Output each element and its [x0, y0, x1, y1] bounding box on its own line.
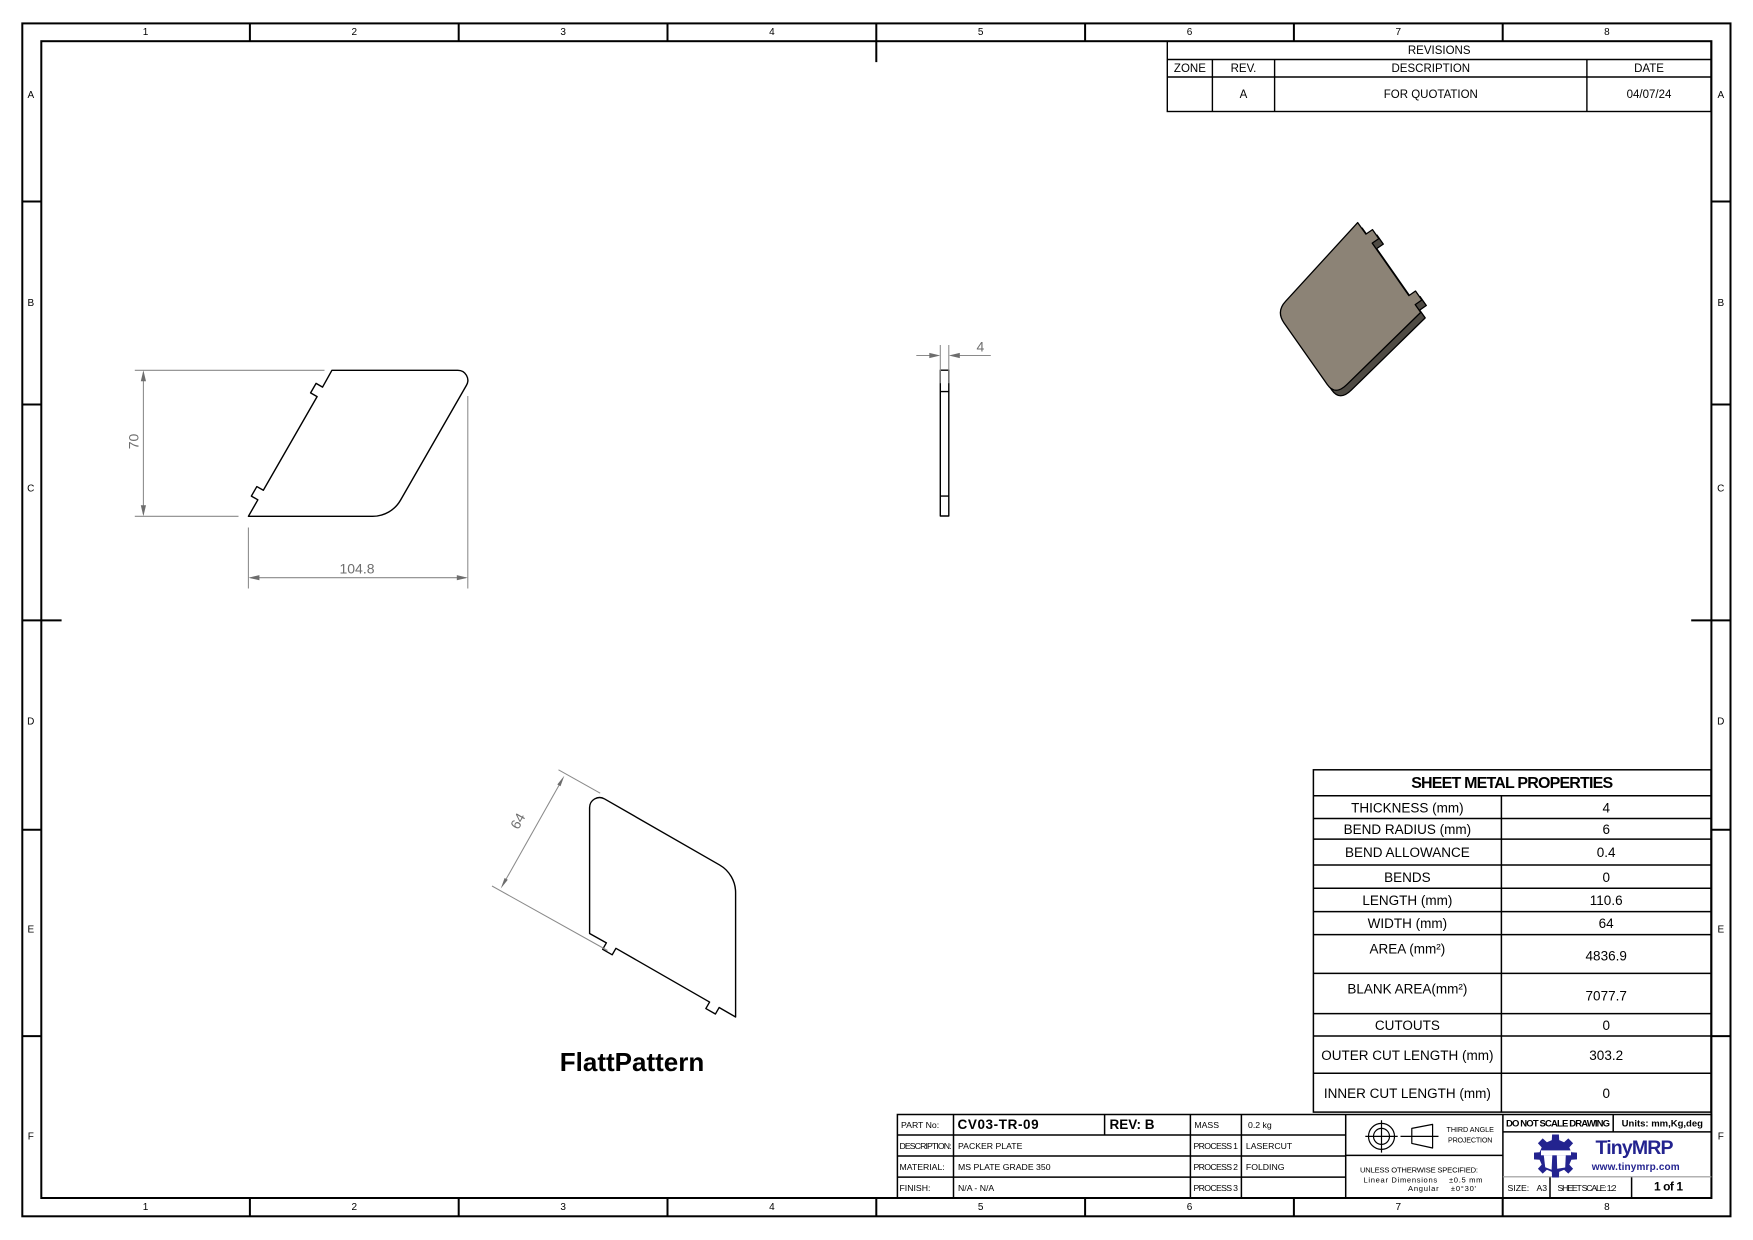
svg-text:A: A: [1717, 90, 1724, 101]
svg-text:4: 4: [1602, 800, 1610, 815]
svg-text:INNER CUT LENGTH (mm): INNER CUT LENGTH (mm): [1324, 1086, 1491, 1101]
svg-text:A: A: [1240, 89, 1248, 101]
svg-text:F: F: [28, 1132, 34, 1143]
svg-text:2: 2: [352, 1202, 358, 1213]
svg-text:A: A: [27, 90, 34, 101]
svg-text:FOR QUOTATION: FOR QUOTATION: [1384, 89, 1478, 101]
svg-text:0: 0: [1602, 870, 1610, 885]
svg-text:4: 4: [977, 339, 985, 355]
svg-text:www.tinymrp.com: www.tinymrp.com: [1591, 1162, 1680, 1173]
svg-text:BEND RADIUS (mm): BEND RADIUS (mm): [1344, 822, 1472, 837]
svg-text:6: 6: [1187, 27, 1193, 38]
svg-text:AREA (mm²): AREA (mm²): [1370, 942, 1446, 957]
svg-text:6: 6: [1602, 822, 1610, 837]
svg-text:3: 3: [560, 1202, 566, 1213]
svg-text:DO NOT SCALE DRAWING: DO NOT SCALE DRAWING: [1506, 1118, 1610, 1129]
svg-text:MS PLATE GRADE 350: MS PLATE GRADE 350: [958, 1162, 1051, 1172]
svg-text:4: 4: [769, 1202, 775, 1213]
svg-text:CUTOUTS: CUTOUTS: [1375, 1018, 1440, 1033]
svg-text:MATERIAL:: MATERIAL:: [900, 1162, 945, 1172]
svg-text:3: 3: [560, 27, 566, 38]
svg-text:LASERCUT: LASERCUT: [1246, 1141, 1293, 1151]
svg-text:64: 64: [1599, 916, 1615, 931]
svg-text:Units: mm,Kg,deg: Units: mm,Kg,deg: [1622, 1118, 1703, 1129]
svg-text:REV.: REV.: [1231, 63, 1257, 75]
svg-text:REVISIONS: REVISIONS: [1408, 45, 1471, 57]
svg-text:4836.9: 4836.9: [1586, 949, 1627, 964]
svg-text:7077.7: 7077.7: [1586, 989, 1627, 1004]
svg-text:F: F: [1718, 1132, 1724, 1143]
svg-text:Angular ±0°30': Angular ±0°30': [1408, 1184, 1477, 1193]
svg-text:DESCRIPTION:: DESCRIPTION:: [900, 1141, 952, 1151]
svg-text:THICKNESS (mm): THICKNESS (mm): [1351, 800, 1464, 815]
svg-text:SIZE: A3: SIZE: A3: [1508, 1183, 1548, 1193]
svg-text:5: 5: [978, 27, 984, 38]
svg-text:B: B: [27, 298, 34, 309]
svg-text:PART No:: PART No:: [901, 1120, 939, 1130]
svg-text:BLANK AREA(mm²): BLANK AREA(mm²): [1347, 982, 1467, 997]
svg-text:1: 1: [143, 1202, 149, 1213]
svg-text:C: C: [1717, 484, 1724, 495]
svg-text:D: D: [27, 717, 34, 728]
svg-text:BEND ALLOWANCE: BEND ALLOWANCE: [1345, 845, 1470, 860]
svg-text:0: 0: [1602, 1086, 1610, 1101]
svg-text:SHEET SCALE: 1:2: SHEET SCALE: 1:2: [1558, 1183, 1617, 1193]
svg-text:ZONE: ZONE: [1174, 63, 1206, 75]
svg-text:8: 8: [1604, 27, 1610, 38]
svg-text:THIRD ANGLE: THIRD ANGLE: [1447, 1125, 1495, 1134]
svg-text:0.4: 0.4: [1597, 845, 1616, 860]
svg-text:D: D: [1717, 717, 1724, 728]
svg-text:2: 2: [352, 27, 358, 38]
svg-text:6: 6: [1187, 1202, 1193, 1213]
svg-text:0: 0: [1602, 1018, 1610, 1033]
svg-text:7: 7: [1396, 1202, 1402, 1213]
svg-text:PACKER PLATE: PACKER PLATE: [958, 1141, 1023, 1151]
svg-text:N/A - N/A: N/A - N/A: [958, 1183, 994, 1193]
svg-text:WIDTH (mm): WIDTH (mm): [1368, 916, 1447, 931]
svg-text:303.2: 303.2: [1589, 1048, 1623, 1063]
svg-text:1 of 1: 1 of 1: [1654, 1180, 1683, 1194]
svg-text:DATE: DATE: [1634, 63, 1664, 75]
svg-text:UNLESS OTHERWISE SPECIFIED:: UNLESS OTHERWISE SPECIFIED:: [1360, 1166, 1478, 1175]
svg-text:PROCESS 3: PROCESS 3: [1194, 1183, 1239, 1193]
svg-text:5: 5: [978, 1202, 984, 1213]
svg-text:04/07/24: 04/07/24: [1627, 89, 1672, 101]
svg-text:DESCRIPTION: DESCRIPTION: [1392, 63, 1471, 75]
svg-text:E: E: [27, 925, 34, 936]
svg-text:LENGTH (mm): LENGTH (mm): [1362, 893, 1452, 908]
svg-text:FOLDING: FOLDING: [1246, 1162, 1285, 1172]
svg-text:E: E: [1717, 925, 1724, 936]
svg-text:B: B: [1717, 298, 1724, 309]
svg-text:PROCESS 1: PROCESS 1: [1194, 1141, 1239, 1151]
svg-text:Linear Dimensions ±0.5 mm: Linear Dimensions ±0.5 mm: [1364, 1175, 1483, 1184]
svg-text:OUTER CUT LENGTH (mm): OUTER CUT LENGTH (mm): [1321, 1048, 1493, 1063]
svg-text:REV: B: REV: B: [1110, 1117, 1155, 1132]
svg-text:0.2 kg: 0.2 kg: [1248, 1120, 1272, 1130]
svg-text:FINISH:: FINISH:: [900, 1183, 931, 1193]
svg-text:4: 4: [769, 27, 775, 38]
svg-text:1: 1: [143, 27, 149, 38]
svg-text:70: 70: [126, 434, 142, 450]
svg-text:PROJECTION: PROJECTION: [1448, 1136, 1493, 1145]
svg-text:FlattPattern: FlattPattern: [560, 1047, 704, 1077]
svg-text:SHEET METAL PROPERTIES: SHEET METAL PROPERTIES: [1411, 775, 1613, 792]
svg-text:110.6: 110.6: [1590, 893, 1623, 908]
svg-text:C: C: [27, 484, 34, 495]
svg-text:TinyMRP: TinyMRP: [1596, 1137, 1674, 1159]
svg-text:8: 8: [1604, 1202, 1610, 1213]
svg-text:104.8: 104.8: [339, 560, 374, 576]
svg-text:64: 64: [507, 810, 529, 832]
svg-text:BENDS: BENDS: [1384, 870, 1431, 885]
svg-text:PROCESS 2: PROCESS 2: [1194, 1162, 1239, 1172]
svg-text:7: 7: [1396, 27, 1402, 38]
svg-text:CV03-TR-09: CV03-TR-09: [958, 1117, 1040, 1132]
svg-text:MASS: MASS: [1194, 1120, 1219, 1130]
